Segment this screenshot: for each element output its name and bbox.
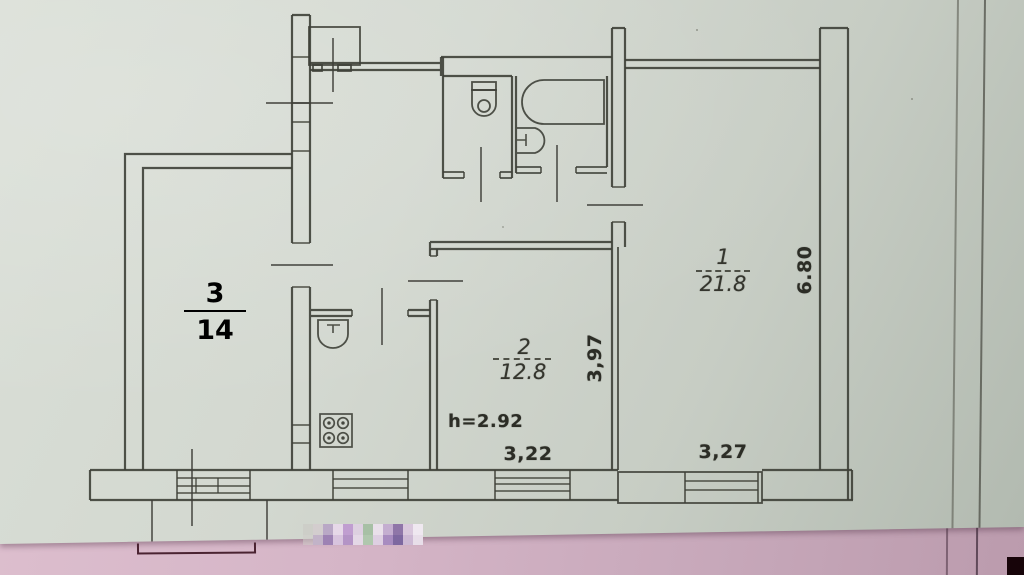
- room2-area-label: 12.8: [493, 362, 553, 383]
- washbasin-icon: [517, 128, 544, 153]
- photo-corner-shadow: [1007, 557, 1024, 575]
- room2-number-label: 2: [496, 337, 552, 358]
- room1-area-label: 21.8: [694, 274, 752, 295]
- dimension-right-wall: 6.80: [795, 235, 815, 305]
- dimension-room1-width: 3,27: [695, 443, 751, 462]
- wc-walls: [443, 57, 516, 178]
- kitchen-walls: [311, 310, 430, 316]
- censored-text-mosaic: [303, 524, 423, 545]
- bottom-wall: [90, 470, 853, 503]
- paper-specks: [502, 29, 913, 228]
- floorplan-drawing: [0, 0, 1024, 575]
- floorplan-photo: 3 14 2 12.8 1 21.8 6.80 3,97 h=2.92 3,22…: [0, 0, 1024, 575]
- room3-number-label: 3: [185, 280, 245, 307]
- room3-walls: [125, 154, 292, 470]
- toilet-icon: [472, 82, 496, 116]
- floorplan-sheet: 3 14 2 12.8 1 21.8 6.80 3,97 h=2.92 3,22…: [0, 0, 1024, 575]
- floorplan-sheet-wrap: 3 14 2 12.8 1 21.8 6.80 3,97 h=2.92 3,22…: [0, 0, 1024, 575]
- bathtub-icon: [522, 80, 604, 124]
- room3-fraction-line: [184, 310, 246, 312]
- ceiling-height-note: h=2.92: [448, 413, 516, 431]
- hall-top-wall: [310, 57, 612, 76]
- room1-left-wall: [612, 28, 625, 470]
- vent-shaft-icon: [309, 27, 360, 71]
- central-wall-column: [292, 15, 310, 470]
- room1-number-label: 1: [697, 247, 749, 268]
- room3-area-label: 14: [185, 317, 245, 344]
- kitchen-sink-icon: [318, 320, 348, 348]
- dimension-room2-width: 3,22: [500, 445, 556, 464]
- balcony-bracket-mark: [137, 542, 256, 554]
- stove-icon: [320, 414, 352, 447]
- dimension-room2-depth: 3,97: [585, 323, 605, 393]
